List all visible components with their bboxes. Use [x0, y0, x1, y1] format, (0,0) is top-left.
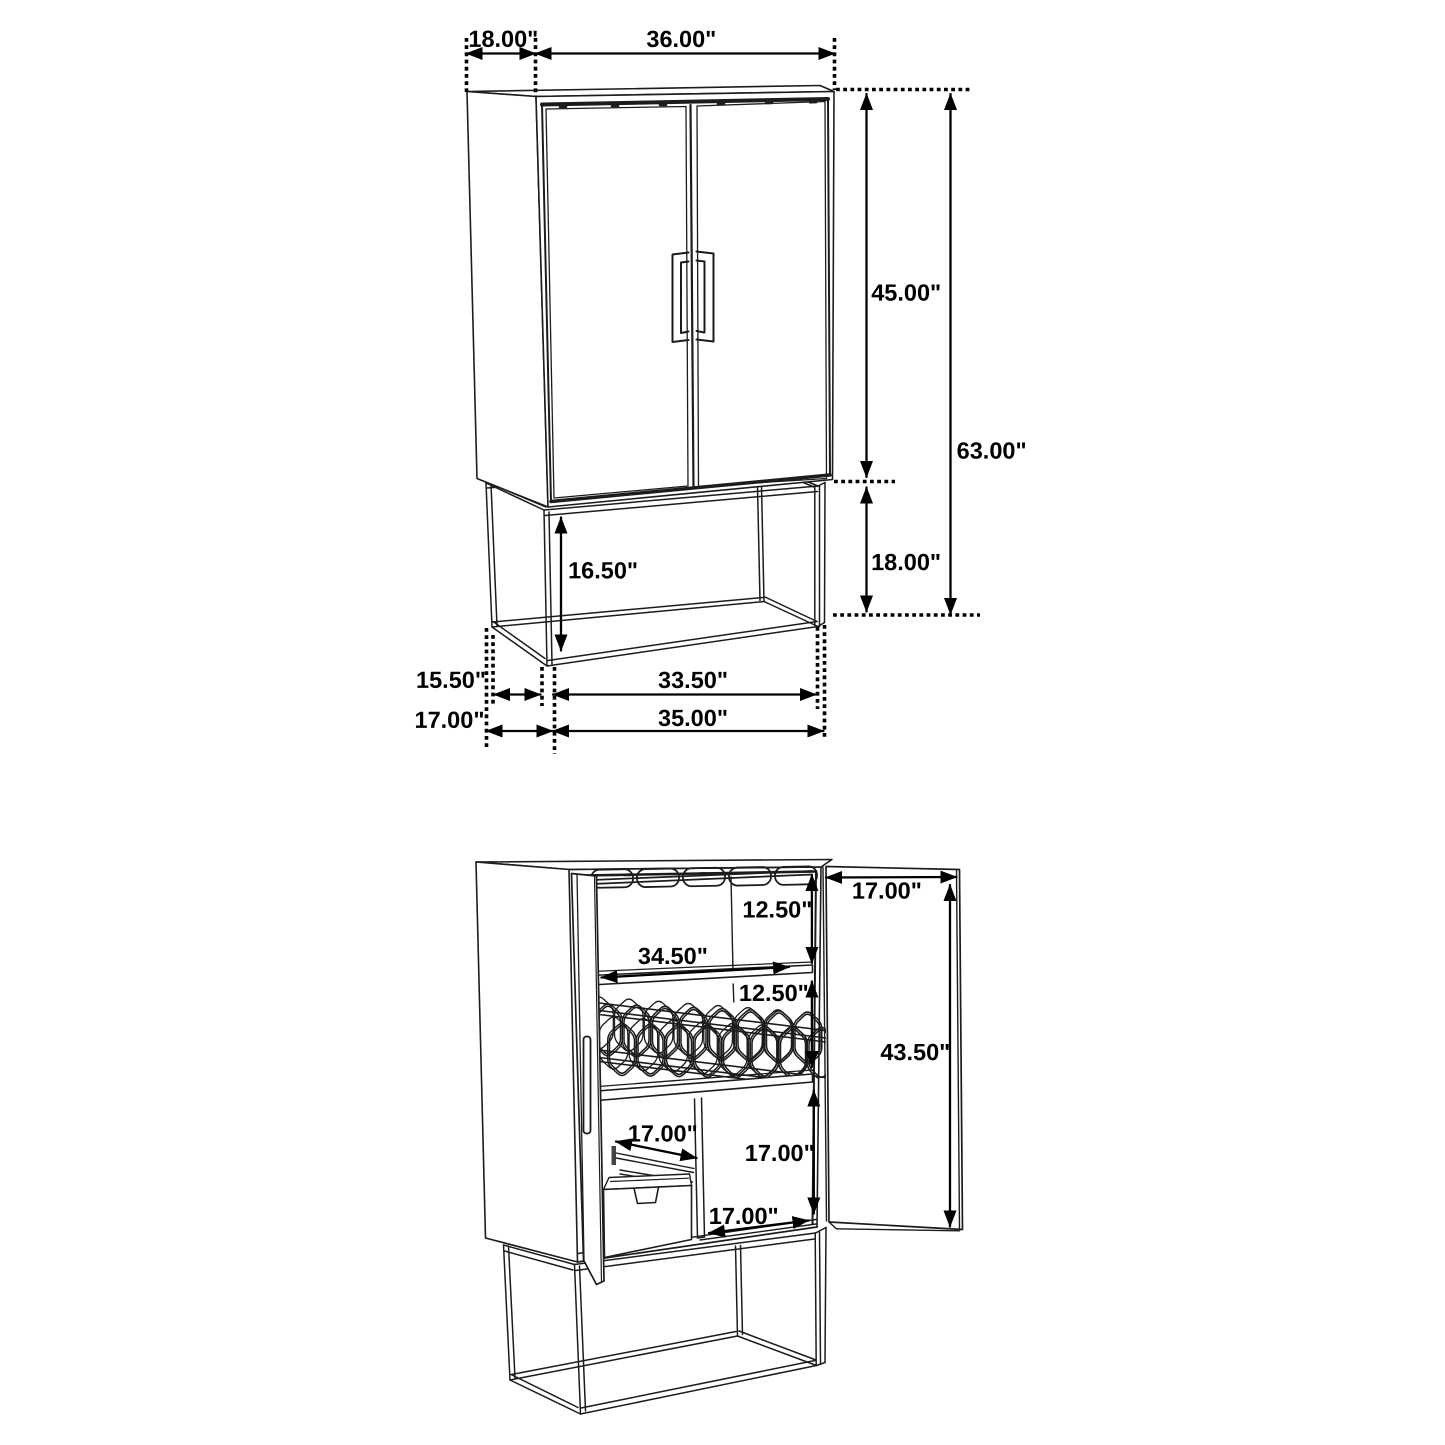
- svg-text:33.50": 33.50": [658, 667, 728, 693]
- svg-text:18.00": 18.00": [468, 26, 538, 52]
- svg-text:35.00": 35.00": [658, 705, 728, 731]
- svg-text:12.50": 12.50": [739, 980, 809, 1006]
- svg-text:43.50": 43.50": [880, 1039, 950, 1065]
- svg-text:17.00": 17.00": [415, 707, 485, 733]
- svg-text:34.50": 34.50": [638, 943, 708, 969]
- svg-text:36.00": 36.00": [646, 26, 716, 52]
- svg-text:17.00": 17.00": [852, 878, 922, 904]
- svg-text:17.00": 17.00": [745, 1140, 815, 1166]
- svg-text:18.00": 18.00": [871, 549, 941, 575]
- svg-text:17.00": 17.00": [628, 1120, 698, 1146]
- svg-text:15.50": 15.50": [416, 667, 486, 693]
- svg-text:63.00": 63.00": [957, 438, 1027, 464]
- svg-text:17.00": 17.00": [709, 1203, 779, 1229]
- svg-text:45.00": 45.00": [871, 280, 941, 306]
- svg-text:12.50": 12.50": [742, 897, 812, 923]
- svg-text:16.50": 16.50": [568, 557, 638, 583]
